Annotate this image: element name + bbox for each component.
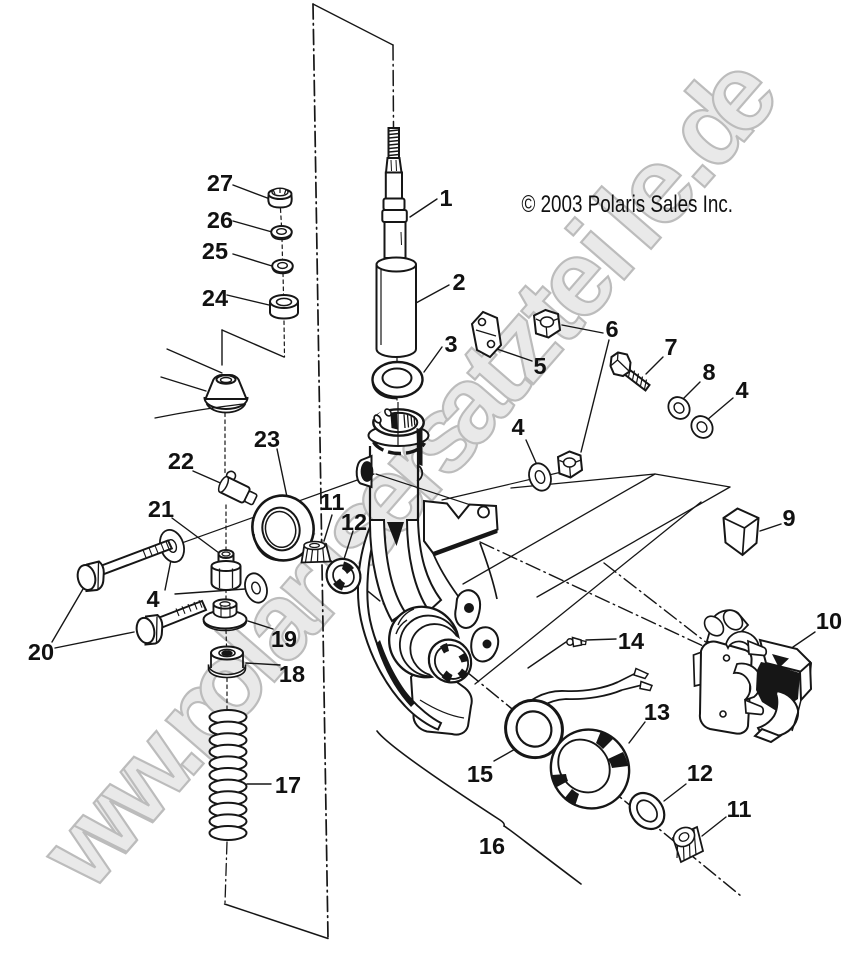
svg-text:3: 3: [444, 331, 457, 357]
svg-text:9: 9: [782, 505, 795, 531]
svg-text:19: 19: [271, 626, 297, 652]
svg-text:14: 14: [618, 628, 644, 654]
svg-text:1: 1: [439, 185, 452, 211]
svg-text:20: 20: [28, 639, 54, 665]
svg-text:18: 18: [279, 661, 305, 687]
svg-text:22: 22: [168, 448, 194, 474]
svg-text:12: 12: [687, 760, 713, 786]
svg-text:5: 5: [533, 353, 546, 379]
svg-text:2: 2: [452, 269, 465, 295]
svg-text:7: 7: [664, 334, 677, 360]
svg-text:11: 11: [727, 796, 752, 822]
svg-text:16: 16: [479, 833, 505, 859]
svg-text:6: 6: [605, 316, 618, 342]
svg-text:17: 17: [275, 772, 301, 798]
svg-text:25: 25: [202, 238, 228, 264]
svg-text:12: 12: [341, 509, 367, 535]
svg-text:13: 13: [644, 699, 670, 725]
svg-text:26: 26: [207, 207, 233, 233]
svg-text:8: 8: [702, 359, 715, 385]
svg-text:4: 4: [146, 586, 159, 612]
svg-text:21: 21: [148, 496, 174, 522]
svg-text:27: 27: [207, 170, 233, 196]
svg-text:4: 4: [735, 377, 748, 403]
svg-text:4: 4: [511, 414, 524, 440]
svg-text:© 2003 Polaris Sales Inc.: © 2003 Polaris Sales Inc.: [522, 191, 734, 218]
svg-text:23: 23: [254, 426, 280, 452]
svg-text:10: 10: [816, 608, 842, 634]
svg-text:15: 15: [467, 761, 493, 787]
svg-text:24: 24: [202, 285, 228, 311]
